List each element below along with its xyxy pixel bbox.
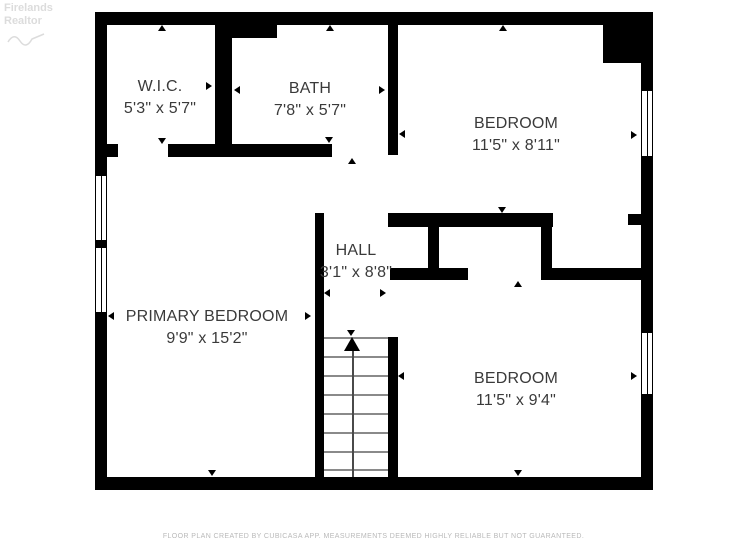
watermark-line1: Firelands xyxy=(4,2,53,15)
room-label-bath: BATH 7'8" x 5'7" xyxy=(240,78,380,122)
window-right-bottom-bedroom xyxy=(641,332,653,395)
wall-bottom-bedroom-top-right xyxy=(541,268,653,280)
floor-plan: Firelands Realtor xyxy=(0,0,747,560)
stairs xyxy=(324,337,388,477)
wall-closet-stub-right xyxy=(628,214,642,225)
dim-arrow-bath-up xyxy=(326,25,334,31)
dim-arrow-bottom-bedroom-up xyxy=(514,281,522,287)
room-dimensions: 11'5" x 9'4" xyxy=(426,390,606,412)
room-name: W.I.C. xyxy=(90,76,230,98)
stair-tread xyxy=(324,432,388,434)
room-dimensions: 3'1" x 8'8" xyxy=(303,262,409,284)
room-dimensions: 11'5" x 8'11" xyxy=(426,135,606,157)
dim-arrow-bottom-bedroom-right xyxy=(631,372,637,380)
wall-closet-divider-right xyxy=(541,227,552,272)
stair-tread xyxy=(324,356,388,358)
room-dimensions: 9'9" x 15'2" xyxy=(92,328,322,350)
wall-exterior-right xyxy=(641,12,653,490)
window-left-upper xyxy=(95,175,107,241)
room-label-hall: HALL 3'1" x 8'8" xyxy=(303,240,409,284)
wall-corner-block-top-right xyxy=(603,12,653,63)
dim-arrow-hall-left xyxy=(324,289,330,297)
watermark-logo: Firelands Realtor xyxy=(4,2,53,50)
room-name: PRIMARY BEDROOM xyxy=(92,306,322,328)
room-name: BEDROOM xyxy=(426,113,606,135)
stair-up-arrow-icon xyxy=(344,337,360,351)
room-label-primary-bedroom: PRIMARY BEDROOM 9'9" x 15'2" xyxy=(92,306,322,350)
stair-tread xyxy=(324,413,388,415)
room-dimensions: 5'3" x 5'7" xyxy=(90,98,230,120)
stair-tread xyxy=(324,394,388,396)
room-label-wic: W.I.C. 5'3" x 5'7" xyxy=(90,76,230,120)
wall-bath-bedroom-divider xyxy=(388,25,398,155)
room-name: HALL xyxy=(303,240,409,262)
room-label-bedroom-bottom: BEDROOM 11'5" x 9'4" xyxy=(426,368,606,412)
dim-arrow-primary-up xyxy=(208,151,216,157)
stair-tread xyxy=(324,469,388,471)
dim-arrow-hall-up xyxy=(348,158,356,164)
wall-exterior-bottom xyxy=(95,477,653,490)
watermark-signature-icon xyxy=(4,28,48,46)
dim-arrow-top-bedroom-right xyxy=(631,131,637,139)
room-name: BATH xyxy=(240,78,380,100)
dim-arrow-top-bedroom-down xyxy=(498,207,506,213)
wall-stairwell-right xyxy=(388,337,398,477)
watermark-line2: Realtor xyxy=(4,15,53,28)
wall-wic-door-stub xyxy=(107,144,118,157)
window-right-top-bedroom xyxy=(641,90,653,157)
dim-arrow-hall-down xyxy=(347,330,355,336)
dim-arrow-wic-up xyxy=(158,25,166,31)
wall-below-top-bedroom xyxy=(388,213,553,227)
room-dimensions: 7'8" x 5'7" xyxy=(240,100,380,122)
dim-arrow-bath-down xyxy=(325,137,333,143)
stair-direction-line xyxy=(352,350,354,477)
window-left-lower xyxy=(95,247,107,313)
stair-tread xyxy=(324,451,388,453)
room-name: BEDROOM xyxy=(426,368,606,390)
dim-arrow-wic-down xyxy=(158,138,166,144)
dim-arrow-top-bedroom-up xyxy=(499,25,507,31)
wall-below-wic-bath xyxy=(168,144,332,157)
dim-arrow-bottom-bedroom-left xyxy=(398,372,404,380)
dim-arrow-top-bedroom-left xyxy=(399,130,405,138)
dim-arrow-bottom-bedroom-down xyxy=(514,470,522,476)
footer-disclaimer: FLOOR PLAN CREATED BY CUBICASA APP. MEAS… xyxy=(0,533,747,540)
wall-exterior-top xyxy=(95,12,653,25)
wall-bath-soffit xyxy=(215,25,277,38)
stair-tread xyxy=(324,375,388,377)
room-label-bedroom-top: BEDROOM 11'5" x 8'11" xyxy=(426,113,606,157)
dim-arrow-hall-right xyxy=(380,289,386,297)
dim-arrow-primary-down xyxy=(208,470,216,476)
